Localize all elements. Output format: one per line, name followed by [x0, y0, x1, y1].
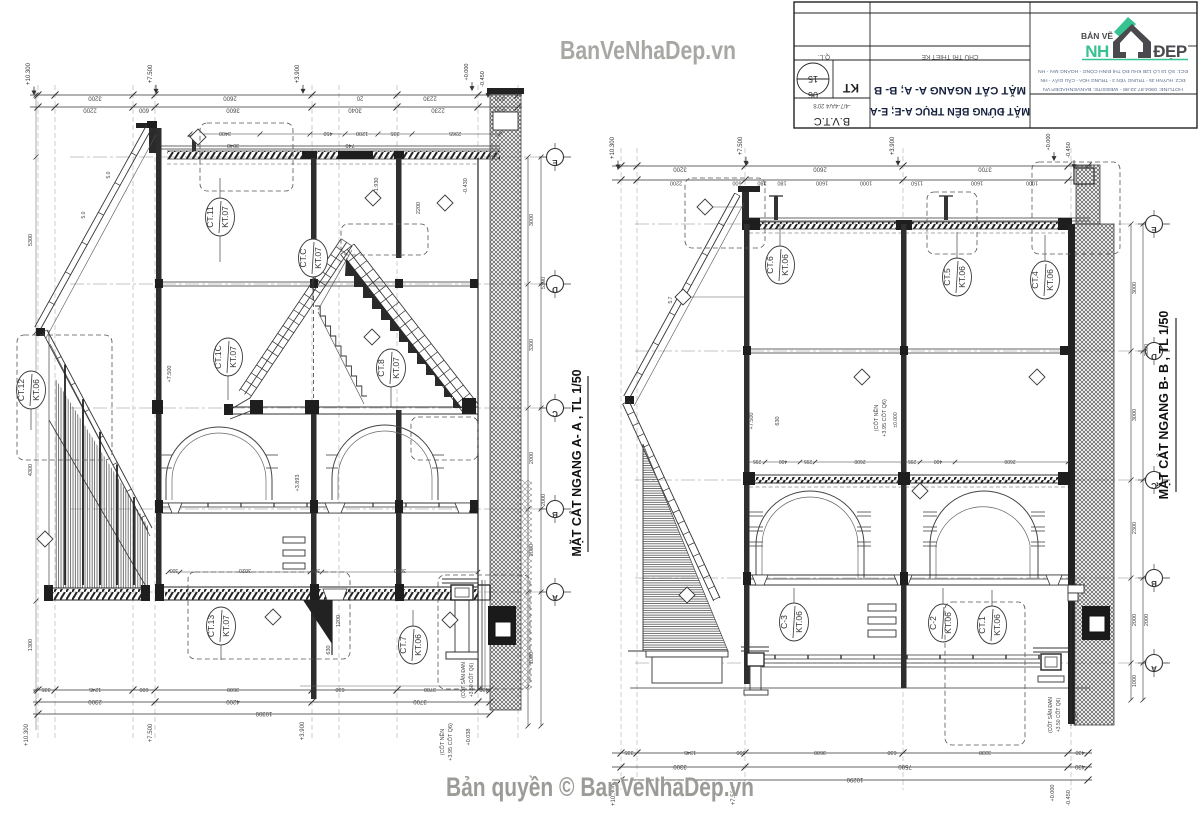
- svg-text:3040: 3040: [227, 142, 239, 148]
- svg-text:+0.000: +0.000: [1050, 785, 1056, 802]
- svg-text:KT.07: KT.07: [228, 346, 238, 368]
- svg-text:(CỐT NỀN: (CỐT NỀN: [873, 405, 880, 432]
- svg-text:+0.038: +0.038: [466, 729, 472, 746]
- svg-text:3000: 3000: [1132, 409, 1138, 421]
- svg-text:MẶT CẮT NGANG B- B , TL 1/50: MẶT CẮT NGANG B- B , TL 1/50: [1156, 311, 1171, 500]
- svg-text:B: B: [1151, 579, 1157, 588]
- svg-text:(CỐT SÂN ĐAN: (CỐT SÂN ĐAN: [460, 662, 467, 698]
- svg-text:CT.6: CT.6: [765, 256, 775, 274]
- svg-text:+0.000: +0.000: [1046, 134, 1052, 151]
- svg-text:3600: 3600: [226, 107, 240, 113]
- svg-text:E: E: [552, 158, 558, 167]
- svg-text:5.0: 5.0: [106, 171, 112, 178]
- svg-text:+0.000: +0.000: [464, 64, 470, 81]
- svg-text:MẶT CẮT NGANG A- A , TL 1/50: MẶT CẮT NGANG A- A , TL 1/50: [569, 369, 584, 556]
- svg-text:3300: 3300: [1144, 344, 1150, 356]
- svg-text:3700: 3700: [978, 166, 992, 172]
- svg-text:CT.4: CT.4: [1030, 271, 1040, 289]
- svg-text:10300: 10300: [255, 710, 272, 716]
- svg-text:KT.06: KT.06: [957, 266, 967, 288]
- svg-text:KT.06: KT.06: [780, 254, 790, 276]
- svg-text:CT.11: CT.11: [205, 206, 215, 228]
- svg-text:CT.13: CT.13: [206, 615, 216, 637]
- svg-text:3600: 3600: [227, 686, 239, 692]
- svg-text:+3.95 CỐT Q6): +3.95 CỐT Q6): [881, 399, 888, 437]
- svg-text:1150: 1150: [911, 180, 923, 186]
- svg-text:2200: 2200: [83, 107, 97, 113]
- svg-text:+10.300: +10.300: [610, 136, 616, 159]
- svg-text:5300: 5300: [28, 234, 34, 246]
- svg-text:3000: 3000: [529, 214, 535, 226]
- svg-text:600: 600: [138, 107, 149, 113]
- svg-text:630: 630: [326, 645, 332, 654]
- svg-text:3330: 3330: [979, 749, 991, 755]
- svg-text:ĐC1: SỐ 15 LÔ 12B KHU ĐÔ THỊ Đ: ĐC1: SỐ 15 LÔ 12B KHU ĐÔ THỊ ĐỊNH CÔNG -…: [1038, 69, 1188, 75]
- svg-text:CT.12: CT.12: [16, 379, 26, 401]
- svg-text:2000: 2000: [541, 494, 547, 506]
- svg-text:2000: 2000: [1132, 614, 1138, 626]
- svg-text:CT.1: CT.1: [977, 616, 987, 634]
- svg-text:3300: 3300: [673, 763, 687, 769]
- svg-text:+1.930: +1.930: [374, 178, 380, 195]
- svg-text:295: 295: [804, 458, 813, 464]
- svg-text:+7.500: +7.500: [167, 366, 173, 383]
- svg-text:+7.500: +7.500: [749, 413, 755, 430]
- svg-text:7500: 7500: [898, 763, 912, 769]
- svg-text:20: 20: [356, 95, 363, 101]
- svg-text:CT.7: CT.7: [398, 636, 408, 654]
- svg-text:15: 15: [808, 74, 818, 84]
- svg-text:2200: 2200: [416, 202, 422, 214]
- svg-text:KT.06: KT.06: [31, 379, 41, 401]
- svg-text:MẶT ĐỨNG BÊN TRỤC A-E; E-A: MẶT ĐỨNG BÊN TRỤC A-E; E-A: [870, 105, 1030, 118]
- svg-text:+3.893: +3.893: [295, 475, 301, 492]
- svg-text:740: 740: [345, 142, 354, 148]
- svg-text:+3.95 CỐT Q6): +3.95 CỐT Q6): [447, 723, 454, 761]
- svg-text:+7.500: +7.500: [148, 723, 154, 742]
- svg-text:-0.430: -0.430: [463, 178, 469, 194]
- svg-text:2230: 2230: [423, 95, 437, 101]
- svg-text:C-3: C-3: [779, 615, 789, 629]
- svg-text:335: 335: [624, 749, 633, 755]
- svg-text:3020: 3020: [394, 567, 406, 573]
- svg-text:600: 600: [139, 686, 148, 692]
- svg-text:3400: 3400: [219, 130, 231, 136]
- svg-text:KT.07: KT.07: [220, 206, 230, 228]
- svg-text:A: A: [552, 593, 558, 602]
- svg-text:+10.300: +10.300: [24, 723, 30, 746]
- svg-text:CT.5: CT.5: [942, 268, 952, 286]
- svg-text:430: 430: [479, 686, 488, 692]
- svg-text:10290: 10290: [846, 776, 863, 782]
- svg-text:+7.500: +7.500: [738, 136, 744, 155]
- svg-text:630: 630: [887, 749, 896, 755]
- svg-text:450: 450: [323, 130, 332, 136]
- svg-text:1000: 1000: [1132, 675, 1138, 687]
- svg-text:B.V.T.C: B.V.T.C: [814, 115, 850, 127]
- svg-text:630: 630: [775, 416, 781, 425]
- svg-text:2300: 2300: [88, 698, 102, 704]
- svg-text:2300: 2300: [1132, 522, 1138, 534]
- svg-text:B: B: [552, 510, 558, 519]
- svg-text:06: 06: [808, 90, 818, 100]
- svg-text:KT: KT: [842, 81, 859, 95]
- svg-text:-0.450: -0.450: [1066, 790, 1072, 806]
- svg-text:1600: 1600: [971, 180, 983, 186]
- svg-text:+3.900: +3.900: [300, 721, 306, 740]
- svg-text:1345: 1345: [684, 749, 696, 755]
- svg-text:335: 335: [390, 130, 399, 136]
- svg-text:3040: 3040: [348, 107, 362, 113]
- svg-text:C-2: C-2: [928, 616, 938, 630]
- svg-text:2230: 2230: [431, 107, 445, 113]
- svg-text:2600: 2600: [854, 458, 865, 464]
- svg-text:KT.07: KT.07: [221, 615, 231, 637]
- svg-text:+7.500: +7.500: [148, 64, 154, 83]
- svg-text:KT.06: KT.06: [794, 611, 804, 633]
- svg-text:CT.8: CT.8: [376, 359, 386, 377]
- svg-text:4200: 4200: [226, 698, 240, 704]
- svg-text:1600: 1600: [816, 180, 828, 186]
- svg-text:BanVeNhaDep.vn: BanVeNhaDep.vn: [560, 35, 736, 65]
- svg-text:KT.06: KT.06: [943, 612, 953, 634]
- svg-text:CT.1C: CT.1C: [213, 345, 223, 369]
- svg-text:180: 180: [777, 180, 786, 186]
- svg-text:400: 400: [934, 458, 943, 464]
- svg-text:Bản quyền © BanVeNhaDep.vn: Bản quyền © BanVeNhaDep.vn: [446, 772, 754, 802]
- svg-text:-4/7-4A/4 20'8: -4/7-4A/4 20'8: [813, 102, 851, 108]
- svg-text:3200: 3200: [88, 95, 102, 101]
- svg-text:(CỐT NỀN: (CỐT NỀN: [439, 729, 446, 756]
- svg-text:3000: 3000: [1132, 282, 1138, 294]
- svg-text:-0.450: -0.450: [480, 71, 486, 87]
- svg-text:NH: NH: [1085, 42, 1109, 61]
- svg-text:(CỐT SÂN ĐAN: (CỐT SÂN ĐAN: [1047, 697, 1054, 733]
- svg-text:2000: 2000: [1144, 614, 1150, 626]
- svg-text:CT.C: CT.C: [298, 249, 308, 268]
- svg-text:1200: 1200: [336, 615, 342, 627]
- svg-text:+3.50 CỐT Q6): +3.50 CỐT Q6): [1055, 698, 1062, 733]
- svg-text:KT.07: KT.07: [391, 357, 401, 379]
- svg-text:C: C: [552, 409, 558, 418]
- svg-text:295: 295: [753, 458, 762, 464]
- svg-text:430: 430: [1075, 749, 1084, 755]
- svg-text:HOTLINE: 0904.87.33.88 - WEBSI: HOTLINE: 0904.87.33.88 - WEBSITE: BANVEN…: [1043, 87, 1183, 92]
- svg-text:1245: 1245: [89, 686, 101, 692]
- svg-text:KT.06: KT.06: [413, 634, 423, 656]
- svg-text:600: 600: [736, 749, 745, 755]
- svg-text:E: E: [1151, 225, 1157, 234]
- svg-text:2200: 2200: [670, 180, 682, 186]
- svg-text:2600: 2600: [813, 166, 827, 172]
- svg-text:MẶT CẮT NGANG A- A; B- B: MẶT CẮT NGANG A- A; B- B: [874, 84, 1026, 97]
- svg-text:5.7: 5.7: [668, 296, 674, 303]
- svg-text:-0.450: -0.450: [1066, 142, 1072, 158]
- svg-text:1000: 1000: [860, 180, 872, 186]
- svg-text:3600: 3600: [814, 749, 826, 755]
- svg-text:630: 630: [335, 686, 344, 692]
- svg-text:-3.45: -3.45: [1074, 712, 1080, 724]
- svg-text:D: D: [1151, 352, 1157, 361]
- svg-text:2000: 2000: [529, 452, 535, 464]
- svg-text:3300: 3300: [529, 339, 535, 351]
- svg-text:5300: 5300: [541, 277, 547, 289]
- svg-text:+3.900: +3.900: [295, 64, 301, 83]
- svg-text:295: 295: [908, 458, 917, 464]
- svg-text:A: A: [1151, 664, 1157, 673]
- svg-text:400: 400: [779, 458, 788, 464]
- svg-text:ĐC2: HUỲNH 35 - TRUNG YÊN 3 -: ĐC2: HUỲNH 35 - TRUNG YÊN 3 - TRUNG HÒA …: [1041, 78, 1186, 85]
- svg-text:+3.50 CỐT Q6): +3.50 CỐT Q6): [468, 663, 475, 698]
- svg-text:3700: 3700: [413, 698, 427, 704]
- svg-text:+10.300: +10.300: [26, 62, 32, 85]
- svg-text:3200: 3200: [673, 166, 687, 172]
- svg-text:ĐẸP: ĐẸP: [1153, 42, 1187, 61]
- svg-text:1300: 1300: [28, 639, 34, 651]
- svg-text:2600: 2600: [223, 95, 237, 101]
- svg-text:BẢN VẼ: BẢN VẼ: [1081, 30, 1113, 41]
- svg-text:4300: 4300: [28, 464, 34, 476]
- svg-text:Q.L.: Q.L.: [818, 53, 830, 60]
- svg-text:335: 335: [41, 686, 50, 692]
- svg-text:600: 600: [732, 180, 741, 186]
- svg-text:1200: 1200: [356, 130, 368, 136]
- svg-text:300: 300: [170, 567, 179, 573]
- svg-text:KT.07: KT.07: [313, 247, 323, 269]
- svg-text:2365: 2365: [449, 130, 461, 136]
- svg-text:430: 430: [1074, 763, 1085, 769]
- svg-text:2600: 2600: [1004, 458, 1015, 464]
- svg-text:KT.06: KT.06: [1045, 269, 1055, 291]
- svg-text:3700: 3700: [424, 686, 436, 692]
- svg-text:KT.06: KT.06: [992, 614, 1002, 636]
- svg-text:±0.000: ±0.000: [893, 412, 899, 427]
- svg-text:C: C: [1151, 481, 1157, 490]
- svg-text:+3.900: +3.900: [890, 136, 896, 155]
- svg-text:D: D: [552, 285, 558, 294]
- svg-text:5.0: 5.0: [81, 211, 87, 218]
